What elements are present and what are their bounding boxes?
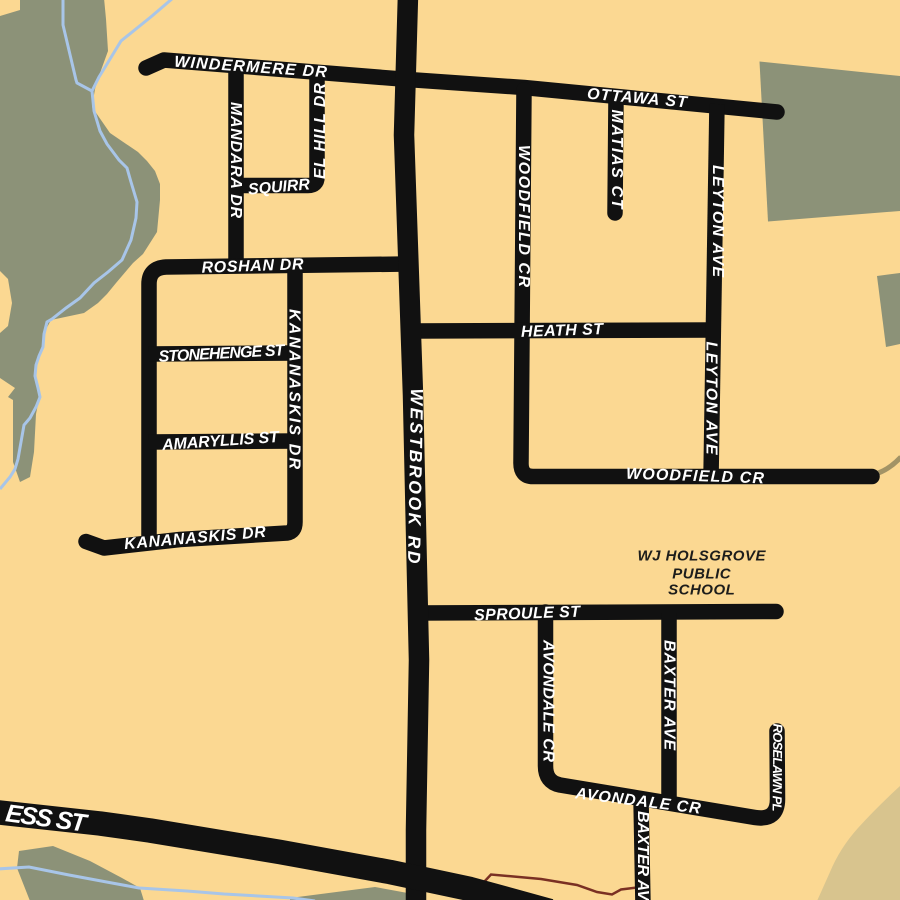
svg-text:WESTBROOK RD: WESTBROOK RD (404, 388, 427, 564)
svg-text:LEYTON AVE: LEYTON AVE (709, 165, 726, 278)
svg-text:HEATH ST: HEATH ST (521, 321, 605, 341)
svg-text:BAXTER AVE: BAXTER AVE (634, 811, 651, 900)
svg-text:BAXTER AVE: BAXTER AVE (661, 640, 678, 751)
svg-text:LEYTON AVE: LEYTON AVE (703, 342, 720, 456)
svg-text:PUBLIC: PUBLIC (672, 566, 732, 583)
svg-text:ROSHAN DR: ROSHAN DR (201, 256, 304, 277)
svg-text:ROSELAWN PL: ROSELAWN PL (770, 723, 786, 811)
svg-text:EL HILL DR: EL HILL DR (312, 83, 329, 179)
svg-text:MANDARA DR: MANDARA DR (227, 102, 244, 218)
svg-text:AVONDALE CR: AVONDALE CR (539, 639, 556, 762)
svg-text:MATIAS CT: MATIAS CT (608, 110, 625, 210)
svg-text:WJ HOLSGROVE: WJ HOLSGROVE (637, 548, 766, 565)
svg-text:WOODFIELD CR: WOODFIELD CR (515, 145, 532, 287)
svg-text:SCHOOL: SCHOOL (668, 582, 735, 599)
